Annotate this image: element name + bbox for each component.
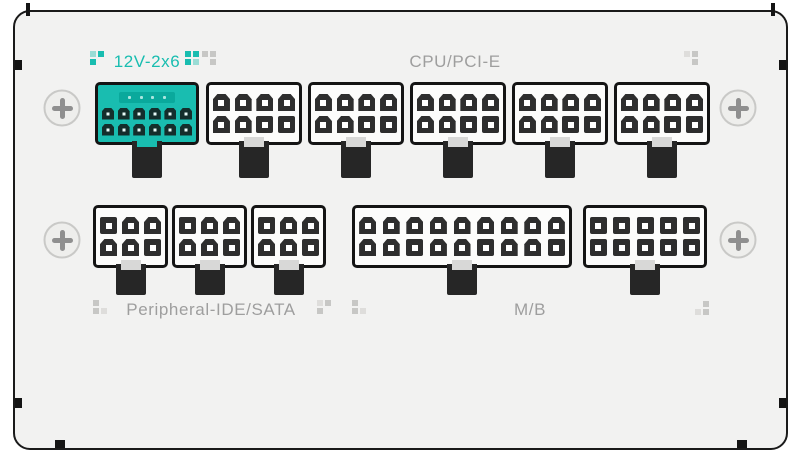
pin-hole <box>692 100 698 106</box>
latch-notch <box>346 137 366 147</box>
connector-pin <box>280 239 297 256</box>
pin-hole <box>388 223 394 229</box>
connector-pin <box>548 217 565 234</box>
connector-pin <box>380 94 397 111</box>
pixel-dot <box>210 51 216 57</box>
connector-pin <box>133 108 145 120</box>
pin-hole <box>138 113 141 116</box>
connector-pin <box>562 116 579 133</box>
pixel-cluster-decoration <box>695 301 709 315</box>
pin-row <box>102 108 192 120</box>
pin-hole <box>207 245 213 251</box>
pin-hole <box>483 245 489 251</box>
connector-pin <box>122 239 139 256</box>
connector-pin <box>541 116 558 133</box>
peripheral-connector-3 <box>251 205 326 268</box>
pin-hole <box>185 223 191 229</box>
edge-notch-bottom-right <box>737 440 747 448</box>
pin-hole <box>286 245 292 251</box>
connector-pin <box>660 239 677 256</box>
connector-pin <box>258 217 275 234</box>
connector-pin <box>584 116 601 133</box>
pin-hole <box>240 122 246 128</box>
pin-hole <box>169 113 172 116</box>
connector-pin <box>179 217 196 234</box>
screw-cross-icon <box>60 98 65 119</box>
connector-pin <box>417 94 434 111</box>
latch-notch <box>550 137 570 147</box>
connector-pin <box>201 217 218 234</box>
pin-hole <box>284 100 290 106</box>
psu-modular-panel-canvas: 12V-2x6 CPU/PCI-E Peripheral-IDE/SATA M/… <box>0 0 803 461</box>
pin-hole <box>218 122 224 128</box>
pin-hole <box>422 100 428 106</box>
pin-hole <box>264 223 270 229</box>
pin-hole <box>530 223 536 229</box>
connector-pin <box>664 116 681 133</box>
pin-hole <box>122 129 125 132</box>
pin-hole <box>546 122 552 128</box>
connector-pin <box>524 217 541 234</box>
connector-pin <box>501 217 518 234</box>
connector-pin <box>149 124 161 136</box>
pin-hole <box>386 100 392 106</box>
pin-row <box>258 239 319 256</box>
connector-pin <box>359 239 376 256</box>
pin-row <box>621 94 703 111</box>
connector-pin <box>590 217 607 234</box>
connector-pin <box>477 239 494 256</box>
pin-hole <box>342 100 348 106</box>
connector-pin <box>406 239 423 256</box>
pixel-dot <box>98 51 104 57</box>
connector-pin <box>358 94 375 111</box>
connector-pin <box>584 94 601 111</box>
connector-pin <box>482 116 499 133</box>
pixel-dot <box>703 301 709 307</box>
pin-hole <box>642 245 648 251</box>
pixel-dot <box>692 51 698 57</box>
connector-pin <box>541 94 558 111</box>
pin-row <box>519 116 601 133</box>
connector-pin <box>430 217 447 234</box>
connector-pin <box>417 116 434 133</box>
connector-pin <box>164 124 176 136</box>
pin-hole <box>590 100 596 106</box>
connector-pin <box>102 124 114 136</box>
phillips-screw-2 <box>720 90 757 127</box>
connector-pin <box>223 217 240 234</box>
pixel-dot <box>193 51 199 57</box>
12v-2x6-connector <box>95 82 199 145</box>
connector-pin <box>660 217 677 234</box>
connector-pin <box>278 116 295 133</box>
mb-connector <box>352 205 572 268</box>
connector-pin <box>383 217 400 234</box>
connector-pin <box>562 94 579 111</box>
latch-notch <box>452 260 472 270</box>
connector-pin <box>477 217 494 234</box>
connector-pin <box>621 116 638 133</box>
pin-hole <box>184 113 187 116</box>
pin-hole <box>546 100 552 106</box>
pin-row <box>213 94 295 111</box>
edge-notch-left-upper <box>15 60 22 70</box>
peripheral-connector-1 <box>93 205 168 268</box>
edge-notch-right-upper <box>779 60 786 70</box>
pin-hole <box>150 223 156 229</box>
sense-pin <box>128 96 131 99</box>
pin-hole <box>506 245 512 251</box>
edge-notch-right-lower <box>779 398 786 408</box>
pin-hole <box>444 122 450 128</box>
pin-hole <box>128 245 134 251</box>
pin-row <box>359 217 565 234</box>
pixel-dot <box>90 59 96 65</box>
pixel-cluster-decoration <box>352 300 366 314</box>
pin-hole <box>412 245 418 251</box>
connector-pin <box>180 124 192 136</box>
latch-notch <box>121 260 141 270</box>
pin-hole <box>444 100 450 106</box>
pin-row <box>258 217 319 234</box>
connector-pin <box>686 116 703 133</box>
pin-hole <box>459 245 465 251</box>
pin-row <box>179 217 240 234</box>
cpu-pcie-connector-2 <box>308 82 404 145</box>
pin-hole <box>264 245 270 251</box>
connector-pin <box>278 94 295 111</box>
sense-pin <box>140 96 143 99</box>
pin-hole <box>122 113 125 116</box>
pin-hole <box>524 122 530 128</box>
pixel-cluster-decoration <box>185 51 199 65</box>
pin-hole <box>229 245 235 251</box>
pin-hole <box>365 223 371 229</box>
pin-hole <box>626 100 632 106</box>
connector-pin <box>613 239 630 256</box>
connector-pin <box>613 217 630 234</box>
connector-pin <box>180 108 192 120</box>
connector-pin <box>213 94 230 111</box>
cpu-pcie-connector-5 <box>614 82 710 145</box>
connector-pin <box>223 239 240 256</box>
pin-hole <box>692 122 698 128</box>
pin-row <box>315 116 397 133</box>
pin-hole <box>488 100 494 106</box>
pin-hole <box>128 223 134 229</box>
pixel-dot <box>101 308 107 314</box>
pixel-dot <box>93 300 99 306</box>
pixel-dot <box>360 308 366 314</box>
pixel-dot <box>317 300 323 306</box>
pin-hole <box>320 122 326 128</box>
pin-hole <box>106 245 112 251</box>
pin-hole <box>388 245 394 251</box>
pixel-dot <box>202 51 208 57</box>
connector-pin <box>179 239 196 256</box>
connector-pin <box>460 94 477 111</box>
pixel-cluster-decoration <box>93 300 107 314</box>
pin-hole <box>488 122 494 128</box>
pin-hole <box>365 245 371 251</box>
pin-hole <box>240 100 246 106</box>
connector-pin <box>501 239 518 256</box>
pin-row <box>179 239 240 256</box>
pin-hole <box>670 100 676 106</box>
pixel-dot <box>692 59 698 65</box>
pin-hole <box>184 129 187 132</box>
pin-hole <box>422 122 428 128</box>
connector-pin <box>280 217 297 234</box>
connector-pin <box>235 116 252 133</box>
pin-row <box>417 116 499 133</box>
connector-pin <box>519 116 536 133</box>
pin-hole <box>218 100 224 106</box>
pin-row <box>100 217 161 234</box>
pin-hole <box>386 122 392 128</box>
connector-pin <box>235 94 252 111</box>
pin-row <box>102 124 192 136</box>
connector-pin <box>683 217 700 234</box>
connector-pin <box>590 239 607 256</box>
pin-hole <box>619 245 625 251</box>
connector-pin <box>430 239 447 256</box>
connector-pin <box>302 217 319 234</box>
pin-hole <box>665 223 671 229</box>
connector-pin <box>482 94 499 111</box>
cpu-pcie-connector-4 <box>512 82 608 145</box>
pin-hole <box>466 100 472 106</box>
connector-pin <box>519 94 536 111</box>
pin-hole <box>665 245 671 251</box>
connector-pin <box>683 239 700 256</box>
pixel-dot <box>352 308 358 314</box>
pixel-dot <box>210 59 216 65</box>
connector-pin <box>460 116 477 133</box>
connector-pin <box>122 217 139 234</box>
pixel-dot <box>684 51 690 57</box>
pixel-cluster-decoration <box>202 51 216 65</box>
connector-pin <box>454 217 471 234</box>
connector-pin <box>664 94 681 111</box>
latch-notch <box>137 137 157 147</box>
pin-hole <box>207 223 213 229</box>
connector-pin <box>548 239 565 256</box>
pin-row <box>590 217 700 234</box>
latch-notch <box>448 137 468 147</box>
pin-hole <box>284 122 290 128</box>
connector-pin <box>256 94 273 111</box>
connector-pin <box>315 116 332 133</box>
connector-pin <box>100 239 117 256</box>
pin-hole <box>595 223 601 229</box>
phillips-screw-1 <box>44 90 81 127</box>
latch-notch <box>652 137 672 147</box>
pin-hole <box>320 100 326 106</box>
connector-pin <box>118 108 130 120</box>
connector-pin <box>637 217 654 234</box>
connector-pin <box>337 116 354 133</box>
pixel-dot <box>185 59 191 65</box>
pin-hole <box>364 100 370 106</box>
connector-pin <box>213 116 230 133</box>
pin-hole <box>466 122 472 128</box>
pin-hole <box>568 100 574 106</box>
pin-hole <box>286 223 292 229</box>
connector-pin <box>406 217 423 234</box>
pin-hole <box>619 223 625 229</box>
connector-pin <box>164 108 176 120</box>
pin-row <box>359 239 565 256</box>
pin-hole <box>689 223 695 229</box>
pin-hole <box>435 245 441 251</box>
pin-row <box>417 94 499 111</box>
pin-hole <box>483 223 489 229</box>
pixel-cluster-decoration <box>684 51 698 65</box>
peripheral-connector-2 <box>172 205 247 268</box>
connector-pin <box>643 94 660 111</box>
connector-pin <box>439 116 456 133</box>
pin-hole <box>107 129 110 132</box>
pin-hole <box>524 100 530 106</box>
pin-hole <box>459 223 465 229</box>
pin-hole <box>262 100 268 106</box>
connector-pin <box>201 239 218 256</box>
pixel-dot <box>325 300 331 306</box>
pin-hole <box>153 113 156 116</box>
pin-row <box>100 239 161 256</box>
connector-pin <box>686 94 703 111</box>
pin-hole <box>530 245 536 251</box>
pixel-dot <box>695 309 701 315</box>
connector-pin <box>439 94 456 111</box>
connector-pin <box>315 94 332 111</box>
latch-notch <box>635 260 655 270</box>
connector-pin <box>100 217 117 234</box>
screw-cross-icon <box>60 230 65 251</box>
label-12v-2x6: 12V-2x6 <box>114 52 181 72</box>
edge-tab-top-left <box>26 3 30 16</box>
pin-hole <box>689 245 695 251</box>
pin-row <box>621 116 703 133</box>
pin-hole <box>626 122 632 128</box>
edge-notch-left-lower <box>15 398 22 408</box>
phillips-screw-4 <box>720 222 757 259</box>
edge-notch-bottom-left <box>55 440 65 448</box>
latch-notch <box>244 137 264 147</box>
aux-10pin-connector <box>583 205 707 268</box>
pixel-cluster-decoration <box>317 300 331 314</box>
connector-pin <box>302 239 319 256</box>
pixel-dot <box>93 308 99 314</box>
pixel-dot <box>703 309 709 315</box>
sense-pin <box>151 96 154 99</box>
label-cpu-pcie: CPU/PCI-E <box>409 52 500 72</box>
connector-pin <box>118 124 130 136</box>
connector-pin <box>102 108 114 120</box>
pin-hole <box>553 245 559 251</box>
screw-cross-icon <box>736 230 741 251</box>
connector-pin <box>149 108 161 120</box>
pin-hole <box>642 223 648 229</box>
connector-pin <box>380 116 397 133</box>
pin-hole <box>308 223 314 229</box>
cpu-pcie-connector-3 <box>410 82 506 145</box>
pin-hole <box>185 245 191 251</box>
sense-pin-slot <box>119 92 175 103</box>
pin-row <box>213 116 295 133</box>
connector-pin <box>144 217 161 234</box>
edge-tab-top-right <box>771 3 775 16</box>
pin-row <box>519 94 601 111</box>
pin-hole <box>308 245 314 251</box>
pin-hole <box>595 245 601 251</box>
pin-hole <box>364 122 370 128</box>
pin-hole <box>553 223 559 229</box>
pixel-dot <box>193 59 199 65</box>
pin-hole <box>590 122 596 128</box>
pin-hole <box>648 122 654 128</box>
connector-pin <box>337 94 354 111</box>
pixel-dot <box>317 308 323 314</box>
pixel-dot <box>352 300 358 306</box>
connector-pin <box>258 239 275 256</box>
sense-pin <box>163 96 166 99</box>
pin-hole <box>106 223 112 229</box>
pixel-cluster-decoration <box>90 51 104 65</box>
latch-notch <box>279 260 299 270</box>
connector-pin <box>383 239 400 256</box>
connector-pin <box>359 217 376 234</box>
pixel-dot <box>90 51 96 57</box>
phillips-screw-3 <box>44 222 81 259</box>
pin-hole <box>435 223 441 229</box>
connector-pin <box>621 94 638 111</box>
screw-cross-icon <box>736 98 741 119</box>
cpu-pcie-connector-1 <box>206 82 302 145</box>
label-peripheral-ide-sata: Peripheral-IDE/SATA <box>126 300 296 320</box>
pin-hole <box>568 122 574 128</box>
pin-hole <box>107 113 110 116</box>
connector-pin <box>133 124 145 136</box>
connector-pin <box>454 239 471 256</box>
pixel-dot <box>185 51 191 57</box>
connector-pin <box>637 239 654 256</box>
pin-hole <box>648 100 654 106</box>
latch-notch <box>200 260 220 270</box>
connector-pin <box>358 116 375 133</box>
connector-pin <box>524 239 541 256</box>
pin-row <box>315 94 397 111</box>
label-mb: M/B <box>514 300 546 320</box>
pin-hole <box>412 223 418 229</box>
pin-hole <box>138 129 141 132</box>
pin-hole <box>169 129 172 132</box>
pin-hole <box>342 122 348 128</box>
pin-row <box>590 239 700 256</box>
pin-hole <box>229 223 235 229</box>
connector-pin <box>256 116 273 133</box>
pin-hole <box>153 129 156 132</box>
pin-hole <box>262 122 268 128</box>
connector-pin <box>144 239 161 256</box>
pin-hole <box>150 245 156 251</box>
connector-pin <box>643 116 660 133</box>
pin-hole <box>506 223 512 229</box>
pin-hole <box>670 122 676 128</box>
